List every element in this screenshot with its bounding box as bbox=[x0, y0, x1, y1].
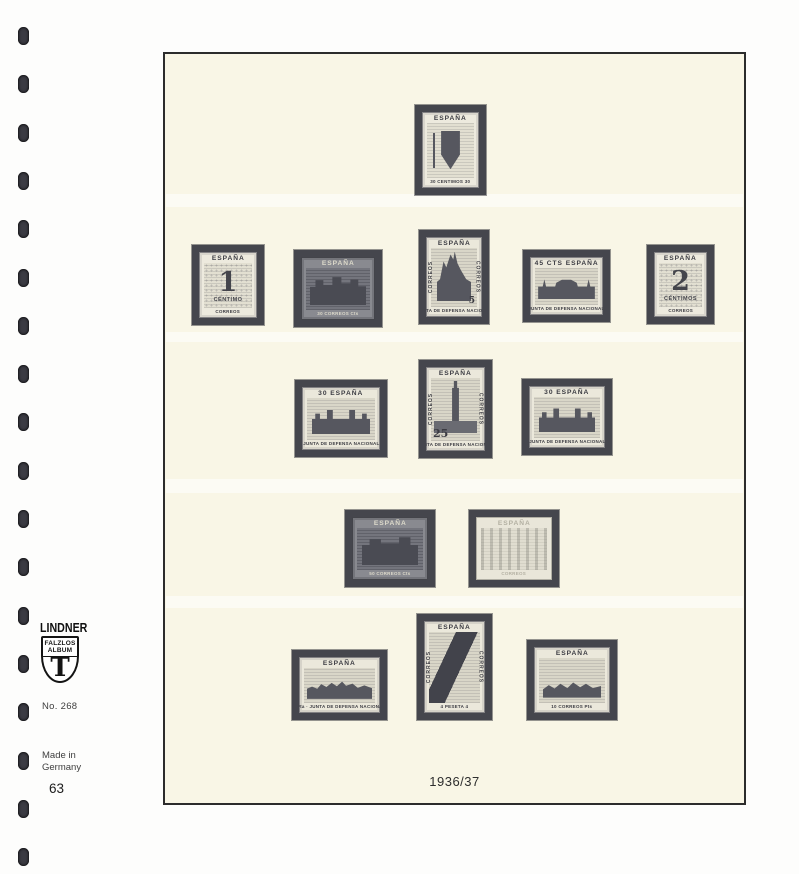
stamp-junta-30-correos: ESPAÑA30 CORREOS Cts bbox=[294, 250, 382, 327]
lindner-logo: LINDNER bbox=[40, 620, 87, 635]
stamp-vignette: 2CÉNTIMOS bbox=[659, 263, 702, 307]
stamp-castillo-30-cts-a: 30 ESPAÑAJUNTA DE DEFENSA NACIONAL bbox=[295, 380, 387, 457]
stamp-palacio-50-cts: ESPAÑA50 CORREOS Cts bbox=[345, 510, 435, 587]
album-page: 1936/37 ESPAÑA30 CENTIMOS 30ESPAÑA1CÉNTI… bbox=[163, 52, 746, 805]
stamp-side-inscription: CORREOS bbox=[478, 651, 484, 683]
album-sheet-number: No. 268 bbox=[42, 701, 77, 712]
cavalry-motif bbox=[539, 658, 605, 703]
stamp-denomination: 2CÉNTIMOS bbox=[659, 263, 702, 307]
denomination-value: 2 bbox=[671, 268, 690, 295]
stamp-inscription: JUNTA DE DEFENSA NACIONAL bbox=[303, 441, 379, 446]
lindner-shield-logo: FALZLOS ALBUM T bbox=[41, 636, 79, 683]
stamp-country-label: 30 ESPAÑA bbox=[318, 390, 363, 397]
stamp-side-inscription: CORREOS bbox=[478, 393, 484, 425]
stamp-paper: ESPAÑA1CÉNTIMOCORREOS bbox=[199, 252, 257, 318]
stamp-side-inscription: CORREOS bbox=[475, 261, 481, 293]
stamp-vista-1-pta: ESPAÑA1Pta · JUNTA DE DEFENSA NACIONAL bbox=[292, 650, 387, 720]
shield-letter-t: T bbox=[43, 657, 77, 679]
stamp-paper: 45 CTS ESPAÑAJUNTA DE DEFENSA NACIONAL bbox=[530, 257, 603, 315]
stamp-country-label: ESPAÑA bbox=[439, 370, 472, 377]
mount-strip-highlight bbox=[166, 332, 743, 342]
denomination-value: 25 bbox=[433, 427, 448, 440]
stamp-vignette bbox=[304, 668, 375, 703]
buildings-motif bbox=[306, 268, 370, 310]
stamp-giralda-25-cts: ESPAÑA25JUNTA DE DEFENSA NACIONALCORREOS… bbox=[419, 360, 492, 458]
stamp-escudo-30cts: ESPAÑA30 CENTIMOS 30 bbox=[415, 105, 486, 195]
stamp-paper: ESPAÑACORREOS bbox=[476, 517, 552, 580]
stamp-inscription: 30 CORREOS Cts bbox=[317, 311, 358, 316]
stamp-vignette bbox=[429, 632, 480, 703]
stamp-country-label: ESPAÑA bbox=[438, 240, 471, 247]
mount-strip-highlight bbox=[166, 194, 743, 207]
stamp-castillo-30-cts-b: 30 ESPAÑAJUNTA DE DEFENSA NACIONAL bbox=[522, 379, 612, 455]
stamp-inscription: CORREOS bbox=[216, 309, 241, 314]
punch-hole bbox=[18, 462, 29, 480]
shield-line-falzlos: FALZLOS bbox=[43, 640, 77, 647]
stamp-inscription: 10 CORREOS Pts bbox=[551, 704, 592, 709]
stamp-paper: ESPAÑA5JUNTA DE DEFENSA NACIONALCORREOSC… bbox=[426, 237, 482, 317]
made-in-germany-label: Made in Germany bbox=[42, 750, 81, 775]
stamp-country-label: ESPAÑA bbox=[323, 660, 356, 667]
stamp-bandera-4-pesetas: ESPAÑA4 PESETA 4CORREOSCORREOS bbox=[417, 614, 492, 720]
punch-hole bbox=[18, 703, 29, 721]
year-label: 1936/37 bbox=[165, 774, 744, 789]
punch-hole bbox=[18, 558, 29, 576]
origin-line-1: Made in bbox=[42, 750, 81, 762]
stamp-denomination: 25 bbox=[433, 427, 448, 440]
stamp-paper: ESPAÑA25JUNTA DE DEFENSA NACIONALCORREOS… bbox=[426, 367, 485, 451]
stamp-vignette bbox=[357, 528, 423, 570]
stamp-vignette bbox=[535, 268, 598, 305]
denomination-caption: CÉNTIMOS bbox=[664, 296, 697, 302]
stamp-inscription: 50 CORREOS Cts bbox=[369, 571, 410, 576]
stamp-cifra-2-centimos: ESPAÑA2CÉNTIMOSCORREOS bbox=[647, 245, 714, 324]
punch-hole bbox=[18, 365, 29, 383]
stamp-inscription: CORREOS bbox=[502, 571, 527, 576]
stamp-vignette bbox=[306, 268, 370, 310]
stamp-country-label: ESPAÑA bbox=[498, 520, 531, 527]
stamp-denomination: 1CÉNTIMO bbox=[204, 263, 252, 308]
stamp-vignette: 5 bbox=[431, 248, 477, 307]
punch-hole bbox=[18, 607, 29, 625]
stamp-inscription: 30 CENTIMOS 30 bbox=[430, 179, 470, 184]
stamp-vignette bbox=[307, 398, 375, 440]
stamp-inscription: JUNTA DE DEFENSA NACIONAL bbox=[426, 308, 482, 313]
punch-hole bbox=[18, 172, 29, 190]
stamp-paper: ESPAÑA30 CENTIMOS 30 bbox=[422, 112, 479, 188]
stamp-caballeria-10-pts: ESPAÑA10 CORREOS Pts bbox=[527, 640, 617, 720]
basilica-motif bbox=[535, 268, 598, 305]
stamp-paper: ESPAÑA10 CORREOS Pts bbox=[534, 647, 610, 713]
page-number: 63 bbox=[49, 781, 64, 796]
stamp-side-inscription: CORREOS bbox=[428, 393, 434, 425]
stamp-side-inscription: CORREOS bbox=[426, 651, 432, 683]
stamp-paper: ESPAÑA50 CORREOS Cts bbox=[352, 517, 428, 580]
stamp-country-label: ESPAÑA bbox=[322, 260, 355, 267]
stamp-inscription: JUNTA DE DEFENSA NACIONAL bbox=[530, 306, 603, 311]
stamp-paper: ESPAÑA4 PESETA 4CORREOSCORREOS bbox=[424, 621, 485, 713]
stamp-country-label: ESPAÑA bbox=[556, 650, 589, 657]
stamp-vignette: 1CÉNTIMO bbox=[204, 263, 252, 308]
stamp-country-label: 45 CTS ESPAÑA bbox=[535, 260, 599, 267]
stamp-denomination: 5 bbox=[469, 296, 475, 306]
stamp-catedral-5-cts: ESPAÑA5JUNTA DE DEFENSA NACIONALCORREOSC… bbox=[419, 230, 489, 324]
origin-line-2: Germany bbox=[42, 762, 81, 774]
stamp-paper: ESPAÑA1Pta · JUNTA DE DEFENSA NACIONAL bbox=[299, 657, 380, 713]
punch-hole bbox=[18, 317, 29, 335]
arches-motif bbox=[481, 528, 547, 570]
arms-motif bbox=[427, 123, 474, 178]
punch-hole bbox=[18, 220, 29, 238]
stamp-country-label: ESPAÑA bbox=[664, 255, 697, 262]
stamp-inscription: JUNTA DE DEFENSA NACIONAL bbox=[426, 442, 485, 447]
denomination-caption: CÉNTIMO bbox=[214, 297, 243, 303]
stamp-vignette bbox=[427, 123, 474, 178]
stamp-country-label: ESPAÑA bbox=[438, 624, 471, 631]
stamp-paper: 30 ESPAÑAJUNTA DE DEFENSA NACIONAL bbox=[529, 386, 605, 448]
denomination-value: 1 bbox=[219, 269, 238, 296]
punch-hole bbox=[18, 124, 29, 142]
punch-hole bbox=[18, 75, 29, 93]
punch-hole bbox=[18, 800, 29, 818]
castle-motif bbox=[307, 398, 375, 440]
punch-hole bbox=[18, 269, 29, 287]
stamp-paper: ESPAÑA30 CORREOS Cts bbox=[301, 257, 375, 320]
stamp-paper: ESPAÑA2CÉNTIMOSCORREOS bbox=[654, 252, 707, 317]
mount-strip-highlight bbox=[166, 596, 743, 608]
stamp-vignette bbox=[534, 397, 600, 438]
mount-strip-highlight bbox=[166, 479, 743, 493]
palace-motif bbox=[357, 528, 423, 570]
stamp-paper: 30 ESPAÑAJUNTA DE DEFENSA NACIONAL bbox=[302, 387, 380, 450]
punch-hole bbox=[18, 27, 29, 45]
stamp-inscription: 1Pta · JUNTA DE DEFENSA NACIONAL bbox=[299, 704, 380, 709]
stamp-country-label: ESPAÑA bbox=[434, 115, 467, 122]
stamp-arcos-1-pta-faded: ESPAÑACORREOS bbox=[469, 510, 559, 587]
punch-hole bbox=[18, 510, 29, 528]
punch-hole bbox=[18, 752, 29, 770]
stamp-country-label: ESPAÑA bbox=[374, 520, 407, 527]
stamp-pilar-45-cts: 45 CTS ESPAÑAJUNTA DE DEFENSA NACIONAL bbox=[523, 250, 610, 322]
punch-hole bbox=[18, 655, 29, 673]
stamp-country-label: 30 ESPAÑA bbox=[544, 389, 589, 396]
stamp-inscription: 4 PESETA 4 bbox=[441, 704, 469, 709]
stamp-side-inscription: CORREOS bbox=[428, 261, 434, 293]
flag-motif bbox=[429, 632, 480, 703]
stamp-inscription: CORREOS bbox=[668, 308, 693, 313]
castle-motif bbox=[534, 397, 600, 438]
punch-hole bbox=[18, 848, 29, 866]
stamp-cifra-1-centimo: ESPAÑA1CÉNTIMOCORREOS bbox=[192, 245, 264, 325]
cityscape-motif bbox=[304, 668, 375, 703]
stamp-country-label: ESPAÑA bbox=[212, 255, 245, 262]
punch-hole bbox=[18, 413, 29, 431]
denomination-value: 5 bbox=[469, 296, 475, 306]
stamp-vignette bbox=[481, 528, 547, 570]
stamp-inscription: JUNTA DE DEFENSA NACIONAL bbox=[529, 439, 605, 444]
stamp-vignette: 25 bbox=[431, 378, 480, 441]
stamp-vignette bbox=[539, 658, 605, 703]
